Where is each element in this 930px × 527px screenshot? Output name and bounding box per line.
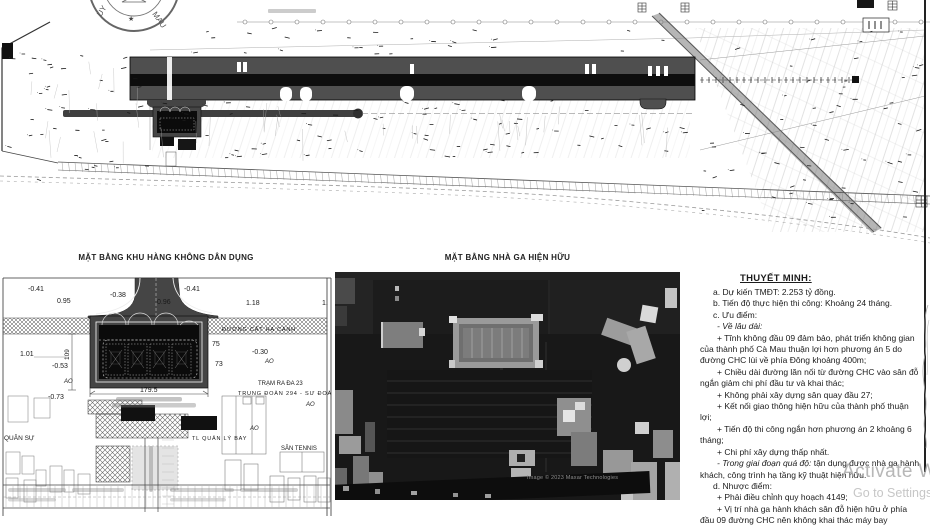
plan-label: QUÂN SỰ [4,433,35,442]
civil-area-plan-drawing: -0.410.95-0.380.96-0.411.181.ĐƯỜNG CẤT H… [0,268,332,516]
survey-mark [43,60,46,61]
survey-mark [285,37,290,38]
page-root: { "site_plan": { "seal": { "left": "UY",… [0,0,930,516]
imagery-credit: Image © 2023 Maxar Technologies [527,475,618,481]
note-line: - Về lâu dài: [700,321,921,332]
plan-label: TRUNG ĐOÀN 294 - SƯ ĐOÀN 367 [238,390,332,397]
plan-label: TL QUẢN LÝ BAY [192,435,247,442]
survey-mark [452,42,456,43]
plan-label: SÂN TENNIS [281,445,317,452]
survey-mark [448,46,452,47]
survey-mark [138,106,143,107]
photo-feature [531,314,543,321]
survey-mark [121,67,126,68]
photo-feature [640,305,659,324]
photo-feature [535,360,543,368]
photo-feature [343,486,349,491]
power-line [237,9,930,24]
survey-mark [32,58,37,59]
note-line: b. Tiến độ thực hiện thi công: Khoảng 24… [700,298,921,309]
activate-windows-watermark: Activate W [842,461,930,483]
photo-feature [485,494,491,498]
plan-label: -0.41 [184,286,200,293]
photo-feature [665,288,677,308]
photo-feature [449,316,457,323]
parcel-field-right [652,13,925,233]
photo-feature [395,286,399,291]
survey-mark [7,146,11,147]
survey-mark [859,41,862,42]
photo-feature [335,278,355,304]
survey-mark [90,109,95,110]
survey-mark [47,64,52,65]
plan-label: -0.53 [52,363,68,370]
plan-label: 1. [322,300,328,307]
photo-feature [453,493,458,497]
survey-mark [627,30,630,31]
survey-mark [237,156,242,157]
photo-feature [617,358,631,372]
survey-mark [94,166,97,167]
survey-mark [47,86,50,87]
survey-mark [123,57,127,58]
survey-mark [488,152,493,153]
survey-mark [730,170,735,171]
plan-label: 73 [215,361,223,368]
survey-mark [53,128,56,129]
survey-mark [101,139,106,140]
plan-label: 109 [64,349,71,360]
survey-mark [246,107,250,108]
note-line: + Vị trí nhà ga hành khách sân đỗ hiện h… [700,504,921,527]
terminal-satellite-photo: Image © 2023 Maxar Technologies [335,272,680,500]
plan-label: AO [63,379,73,385]
runway-centerline-strip [130,74,695,86]
plan-label: 75 [212,341,220,348]
plan-label: TRẠM RA ĐA 23 [258,381,303,387]
photo-feature [563,410,575,422]
photo-feature [449,360,455,368]
note-line: + Tĩnh không đầu 09 đảm bảo, phát triển … [700,333,921,367]
survey-mark [29,73,33,74]
notes-title: THUYẾT MINH: [740,273,812,284]
photo-feature [419,328,425,336]
photo-feature [383,322,423,348]
survey-mark [493,39,498,40]
plan-label: 0.96 [157,299,171,306]
survey-mark [713,177,717,179]
survey-mark [37,179,41,180]
civil-area-plan-title: MẶT BẰNG KHU HÀNG KHÔNG DÂN DỤNG [0,253,332,265]
plan-label: -0.41 [28,286,44,293]
note-line: + Chiều dài đường lăn nối từ đường CHC v… [700,367,921,390]
plan-label: 1.01 [20,351,34,358]
plan-label: 179.5 [140,387,158,394]
site-plan-drawing: UY ★ MAU [0,0,930,256]
survey-mark [80,55,83,56]
photo-feature [335,390,353,434]
note-line: a. Dự kiến TMĐT: 2.253 tỷ đồng. [700,287,921,298]
photo-feature [365,422,375,452]
survey-mark [414,134,417,135]
note-line: + Chi phí xây dựng thấp nhất. [700,447,921,458]
note-line: c. Ưu điểm: [700,310,921,321]
photo-feature [395,296,399,301]
survey-mark [50,67,53,68]
photo-feature [517,454,525,462]
photo-feature [653,430,673,458]
photo-feature [575,402,585,410]
plan-label: -0.73 [48,394,64,401]
photo-feature [335,306,347,326]
plan-label: -0.38 [110,292,126,299]
margin-sketch [919,300,930,450]
survey-mark [29,135,32,136]
seal-star-icon: ★ [128,15,134,23]
photo-feature [635,422,649,434]
survey-mark [473,30,477,31]
activate-windows-settings-hint: Go to Settings [853,486,930,500]
photo-feature [411,491,417,495]
note-line: + Không phải xây dựng sân quay đầu 27; [700,390,921,401]
terminal-photo-title: MẶT BẰNG NHÀ GA HIỆN HỮU [335,253,680,265]
photo-feature [571,432,597,466]
survey-mark [280,50,283,51]
survey-mark [193,52,198,53]
survey-mark [272,27,277,28]
runway-end-stub [640,99,666,109]
photo-feature [375,489,380,494]
photo-feature [353,456,369,484]
survey-mark [247,33,251,34]
photo-feature [339,436,361,454]
survey-mark [47,110,52,111]
plan-label: AO [249,426,259,432]
survey-mark [184,114,188,115]
photo-feature [665,462,680,500]
plan-label: 0.95 [57,298,71,305]
survey-mark [206,31,209,32]
photo-feature [463,328,529,358]
parcel-field-mid [152,100,690,158]
plan-label: AO [264,359,274,365]
plan-label: -0.30 [252,349,268,356]
seal-letter-left: UY [95,3,109,18]
apron [90,313,208,388]
note-line: + Tiến độ thi công ngắn hơn phương án 2 … [700,424,921,447]
plan-label: ĐƯỜNG CẤT HẠ CÁNH [222,326,296,333]
plan-label: AO [305,402,315,408]
survey-mark [79,157,82,158]
official-seal: UY ★ MAU [89,0,179,31]
survey-mark [62,94,67,95]
note-line: + Kết nối giao thông hiện hữu của thành … [700,401,921,424]
survey-mark [109,161,113,162]
plan-label: 1.18 [246,300,260,307]
survey-mark [683,132,688,133]
